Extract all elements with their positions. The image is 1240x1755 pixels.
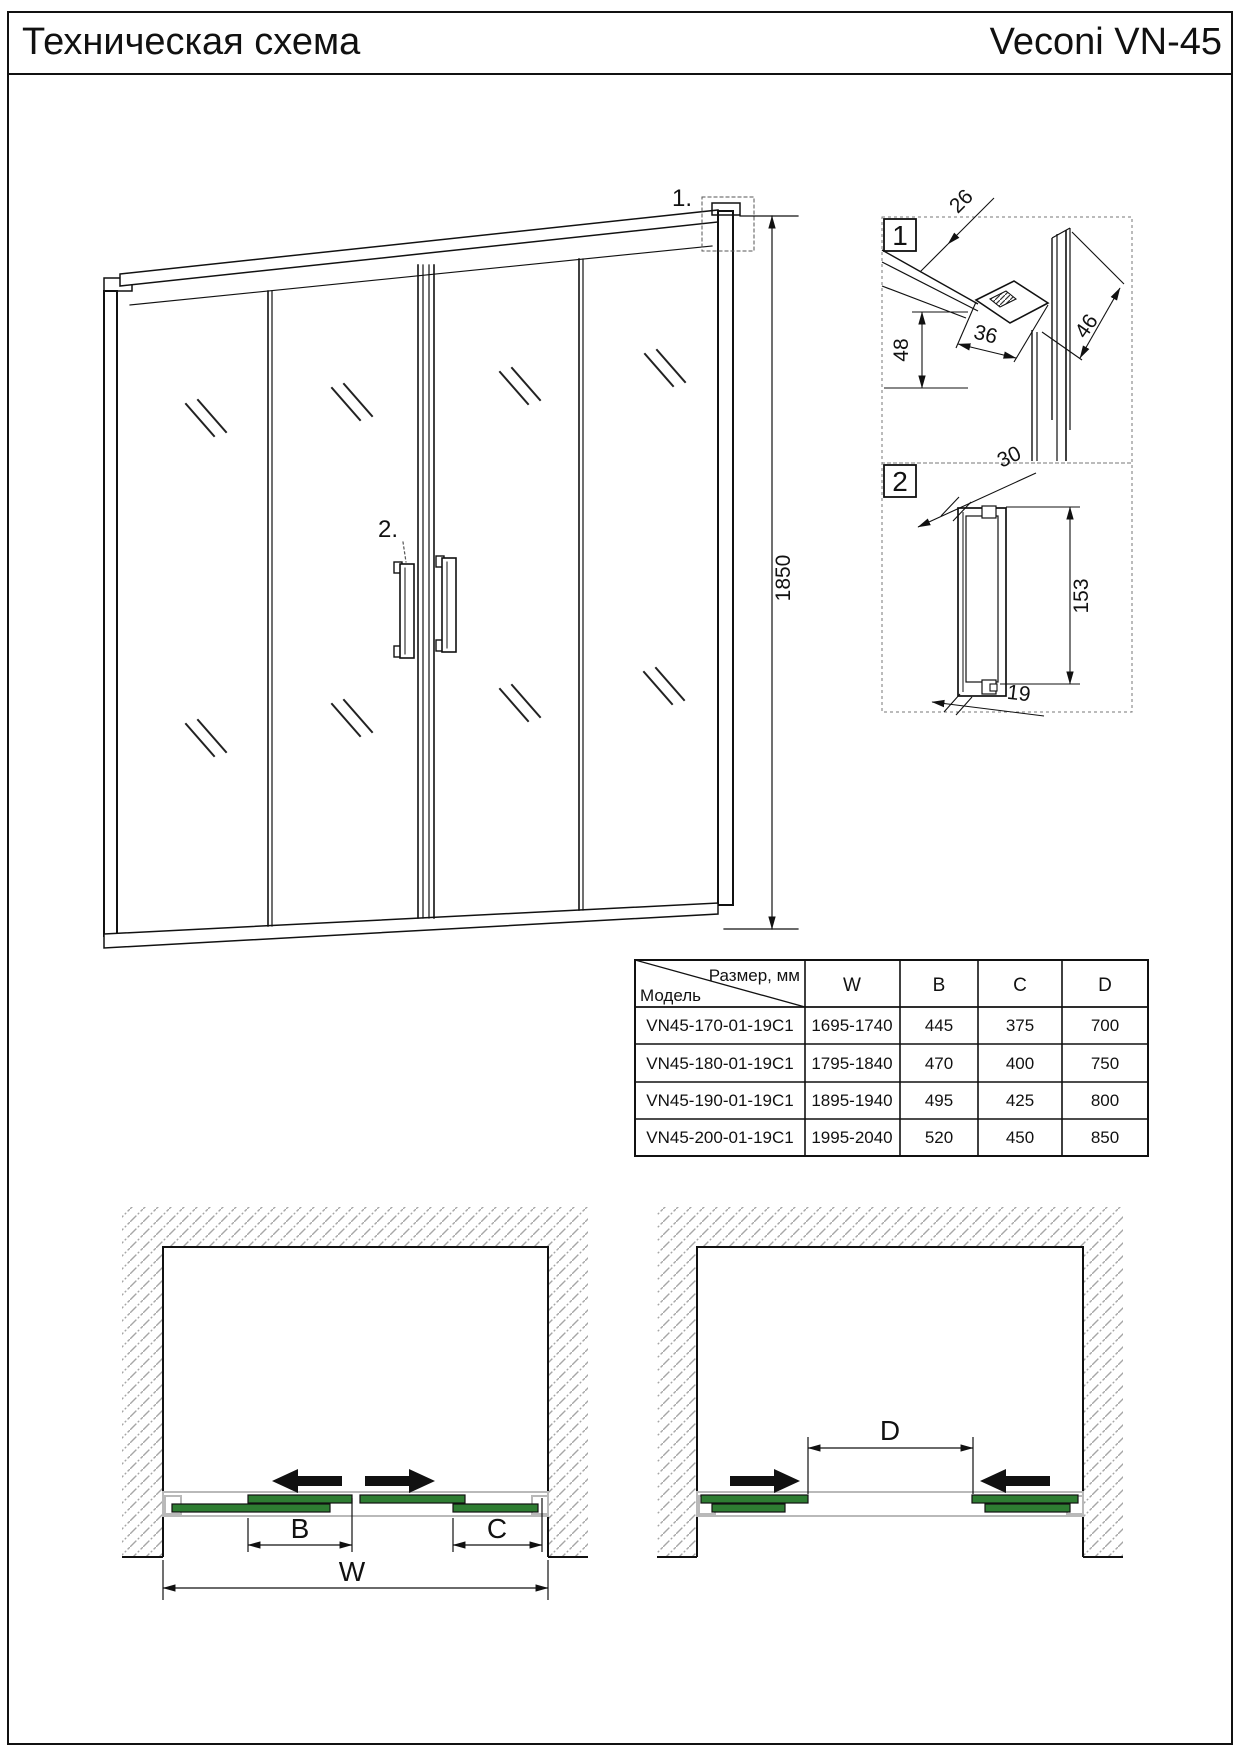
scheme-canvas: Техническая схема Veconi VN-45 <box>0 0 1240 1755</box>
detail-1-view: 1 26 48 36 <box>882 185 1132 463</box>
row0-w: 1695-1740 <box>811 1016 892 1035</box>
slide-arrow-left <box>980 1469 1050 1493</box>
wall-profile-lines <box>1032 228 1070 461</box>
door-handle-right <box>436 556 456 652</box>
door-panel <box>701 1495 808 1503</box>
row1-b: 470 <box>925 1054 953 1073</box>
door-panel <box>248 1495 352 1503</box>
detail-1-number: 1 <box>892 220 908 251</box>
col-header-d: D <box>1098 975 1112 996</box>
door-handle-left <box>394 562 414 658</box>
glass-shine-marks <box>186 350 685 756</box>
dim-30: 30 <box>994 442 1025 473</box>
col-header-w: W <box>843 975 861 996</box>
header: Техническая схема Veconi VN-45 <box>22 21 1222 63</box>
wall-right <box>548 1247 588 1557</box>
door-panel <box>972 1495 1078 1503</box>
row2-c: 425 <box>1006 1091 1034 1110</box>
row3-b: 520 <box>925 1128 953 1147</box>
dim-19: 19 <box>1006 681 1032 707</box>
row0-c: 375 <box>1006 1016 1034 1035</box>
dim-153: 153 <box>1070 578 1093 613</box>
callout-2-label: 2. <box>378 516 398 543</box>
model-title: Veconi VN-45 <box>990 21 1222 63</box>
left-post <box>104 291 117 936</box>
detail1-callout-box <box>702 197 754 251</box>
row0-model: VN45-170-01-19C1 <box>646 1016 793 1035</box>
door-panel <box>360 1495 465 1503</box>
row3-w: 1995-2040 <box>811 1128 892 1147</box>
dim-36: 36 <box>971 321 999 349</box>
table-model-label: Модель <box>640 986 701 1005</box>
main-door-drawing: 1. 2. 1850 <box>104 185 798 948</box>
size-table: Размер, мм Модель W B C D VN45-170-01-19… <box>635 960 1148 1156</box>
bottom-rail <box>104 903 718 948</box>
row1-c: 400 <box>1006 1054 1034 1073</box>
slide-arrow-right <box>730 1469 800 1493</box>
detail-2-number: 2 <box>892 466 908 497</box>
height-dimension: 1850 <box>724 216 798 929</box>
table-size-label: Размер, мм <box>709 966 800 985</box>
row1-d: 750 <box>1091 1054 1119 1073</box>
row2-d: 800 <box>1091 1091 1119 1110</box>
technical-scheme-page: Техническая схема Veconi VN-45 <box>0 0 1240 1755</box>
height-dim-text: 1850 <box>772 555 795 602</box>
page-title: Техническая схема <box>22 21 361 63</box>
wall-right <box>1083 1247 1123 1557</box>
door-panel <box>453 1504 538 1512</box>
dim-26: 26 <box>945 185 978 218</box>
col-header-b: B <box>933 975 946 996</box>
panel-dividers <box>268 259 583 926</box>
dim-b-label: B <box>291 1513 310 1544</box>
door-panel <box>712 1504 785 1512</box>
row3-model: VN45-200-01-19C1 <box>646 1128 793 1147</box>
row2-model: VN45-190-01-19C1 <box>646 1091 793 1110</box>
top-rail <box>120 210 718 286</box>
handle-section <box>958 506 1006 696</box>
detail-2-view: 2 30 153 19 <box>882 442 1132 716</box>
wall-top <box>657 1207 1123 1247</box>
slide-arrow-right <box>365 1469 435 1493</box>
dim-48: 48 <box>890 338 913 361</box>
door-panel <box>172 1504 330 1512</box>
top-profile-section <box>976 281 1048 323</box>
row1-w: 1795-1840 <box>811 1054 892 1073</box>
dim-w-label: W <box>339 1556 366 1587</box>
row3-d: 850 <box>1091 1128 1119 1147</box>
dim-c-label: C <box>487 1513 507 1544</box>
row2-w: 1895-1940 <box>811 1091 892 1110</box>
row2-b: 495 <box>925 1091 953 1110</box>
wall-top <box>122 1207 588 1247</box>
row0-b: 445 <box>925 1016 953 1035</box>
dim-46: 46 <box>1071 310 1103 342</box>
wall-left <box>657 1247 697 1557</box>
plan-view-open: D <box>657 1207 1123 1557</box>
col-header-c: C <box>1013 975 1027 996</box>
plan-view-closed: B C W <box>122 1207 588 1600</box>
row1-model: VN45-180-01-19C1 <box>646 1054 793 1073</box>
right-post <box>718 211 733 905</box>
row0-d: 700 <box>1091 1016 1119 1035</box>
wall-left <box>122 1247 163 1557</box>
door-panel <box>985 1504 1070 1512</box>
slide-arrow-left <box>272 1469 342 1493</box>
row3-c: 450 <box>1006 1128 1034 1147</box>
callout-1-label: 1. <box>672 185 692 212</box>
dim-d-label: D <box>880 1415 900 1446</box>
